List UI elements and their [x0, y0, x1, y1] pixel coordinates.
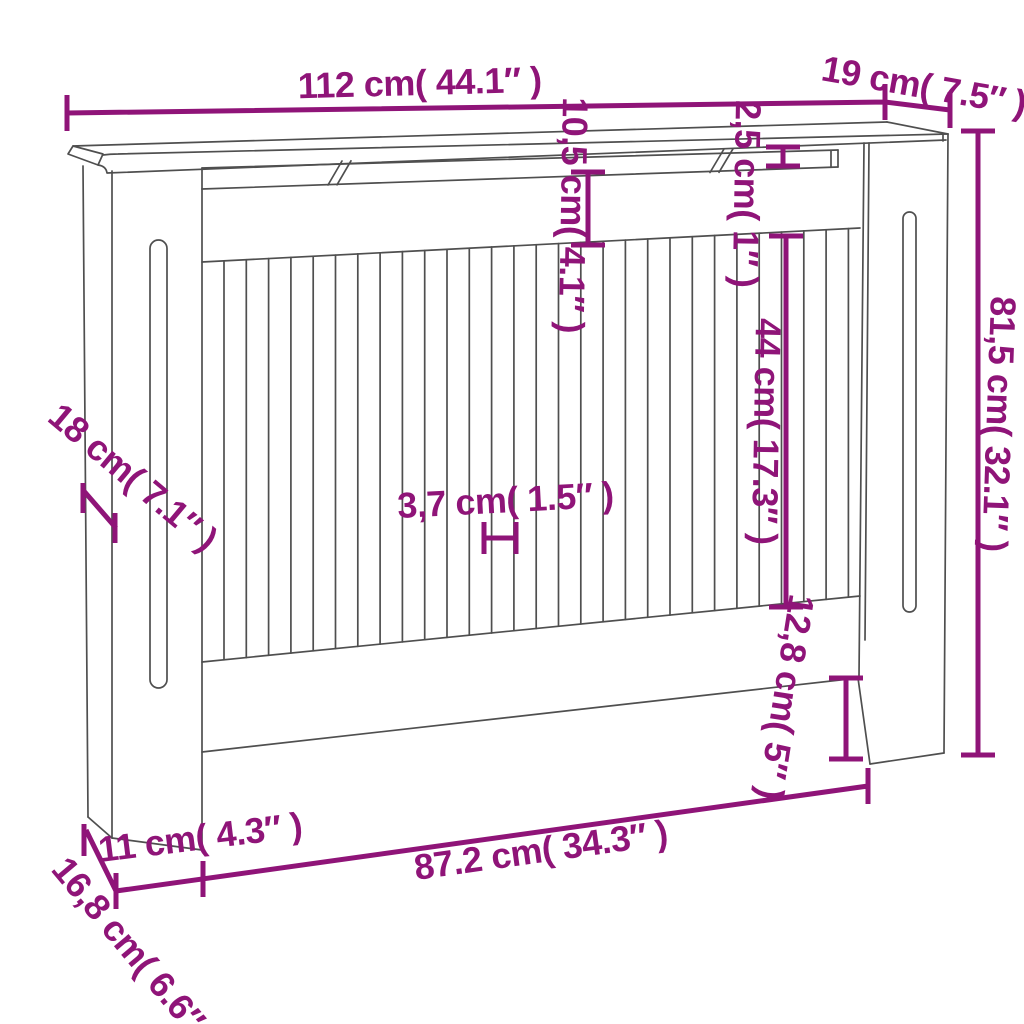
- top-board: [68, 122, 948, 173]
- right-side-front-inner-edge: [865, 143, 869, 640]
- left-stile-slot: [150, 240, 167, 688]
- dim-bottom-side-depth-label: 16,8 cm( 6.6″ ): [44, 849, 227, 1024]
- dim-top-depth-label: 19 cm( 7.5″ ): [819, 48, 1024, 124]
- dim-top-board-thickness-line: [766, 147, 800, 166]
- dim-slat-width-line: [484, 522, 516, 554]
- left-side-panel: [83, 166, 112, 838]
- right-side-back-edge: [944, 134, 948, 753]
- right-side-panel: [859, 134, 948, 764]
- dim-leg-height-line: [829, 678, 863, 759]
- dim-leg-height-label: 12,8 cm( 5″ ): [750, 592, 823, 803]
- dim-side-depth-line: [83, 483, 116, 543]
- dim-top-board-thickness-label: 2,5 cm( 1″ ): [725, 100, 769, 288]
- right-side-bottom-edge: [870, 753, 944, 764]
- slat-panel-bottom-edge: [202, 596, 860, 662]
- top-board-left-end-cap: [68, 146, 103, 165]
- dim-opening-width-label: 87.2 cm( 34.3″ ): [411, 812, 670, 888]
- dim-side-height-label: 81,5 cm( 32.1″ ): [974, 296, 1024, 553]
- dim-slat-height-label: 44 cm( 17.3″ ): [744, 318, 789, 545]
- top-board-right-end-edge: [887, 122, 948, 134]
- cutout-right-edge: [858, 678, 870, 764]
- right-side-front-edge: [859, 143, 864, 677]
- radiator-cover-dimension-diagram: 112 cm( 44.1″ ) 19 cm( 7.5″ ) 10,5 cm( 4…: [0, 0, 1024, 1024]
- top-rail-right-end: [831, 150, 838, 167]
- dim-slat-width-label: 3,7 cm( 1.5″ ): [396, 474, 614, 526]
- dimension-labels: 112 cm( 44.1″ ) 19 cm( 7.5″ ) 10,5 cm( 4…: [41, 48, 1024, 1024]
- dim-side-depth-label: 18 cm( 7.1″ ): [41, 395, 226, 559]
- dimension-diagram-page: 112 cm( 44.1″ ) 19 cm( 7.5″ ) 10,5 cm( 4…: [0, 0, 1024, 1024]
- dim-top-width-label: 112 cm( 44.1″ ): [297, 59, 542, 106]
- right-side-slot: [903, 212, 916, 612]
- dim-leg-width-label: 11 cm( 4.3″ ): [96, 804, 304, 870]
- dim-top-rail-height-label: 10,5 cm( 4.1″ ): [551, 97, 596, 334]
